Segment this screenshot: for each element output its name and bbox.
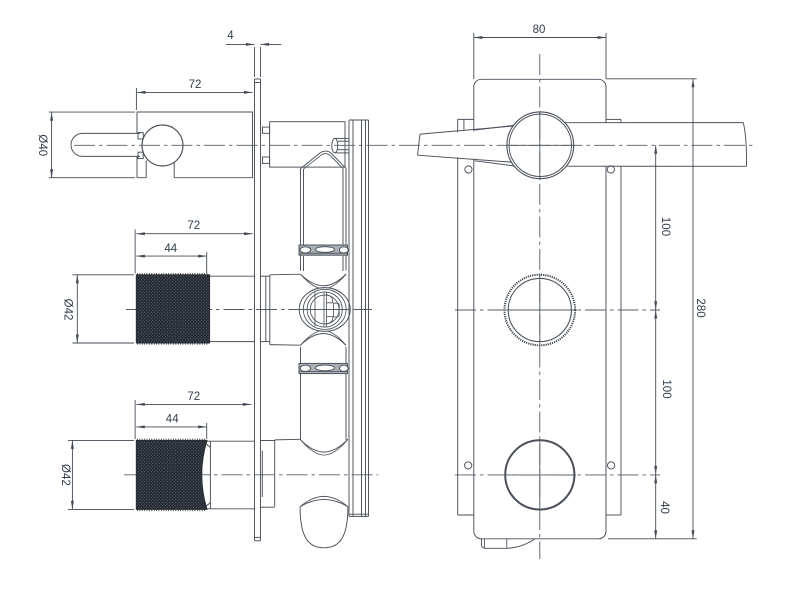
svg-text:72: 72: [187, 391, 200, 403]
svg-text:Ø42: Ø42: [59, 464, 71, 486]
svg-text:44: 44: [164, 243, 177, 255]
svg-text:Ø40: Ø40: [36, 134, 48, 156]
svg-text:280: 280: [694, 298, 706, 317]
svg-text:Ø42: Ø42: [62, 299, 74, 321]
svg-text:4: 4: [227, 30, 234, 42]
svg-text:44: 44: [166, 413, 179, 425]
svg-text:72: 72: [189, 79, 202, 91]
svg-text:100: 100: [660, 379, 672, 398]
svg-text:80: 80: [533, 24, 546, 36]
svg-text:100: 100: [659, 217, 671, 236]
svg-text:72: 72: [187, 220, 200, 232]
svg-text:40: 40: [658, 501, 670, 514]
